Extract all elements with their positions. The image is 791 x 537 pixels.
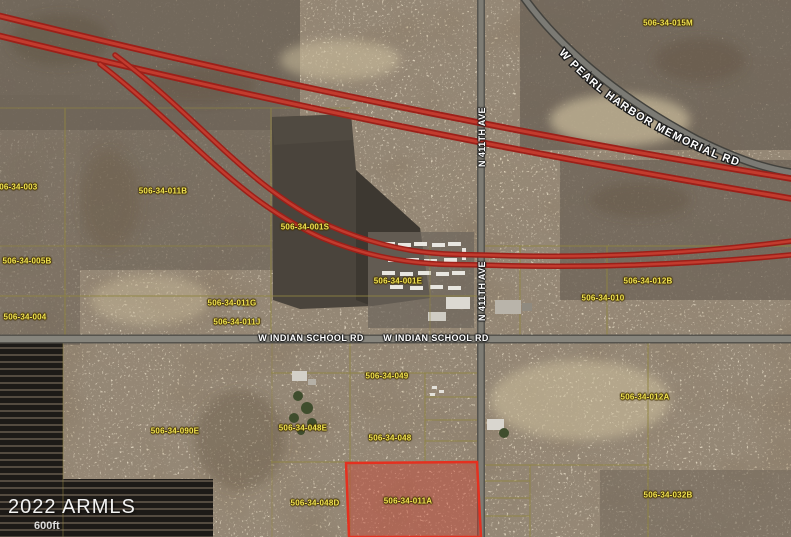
parcel-label: 506-34-001S — [281, 223, 329, 232]
road-label-n411th-ave-lower: N 411TH AVE — [477, 261, 487, 321]
parcel-label: 506-34-090E — [151, 427, 199, 436]
parcel-label: 506-34-032B — [644, 491, 693, 500]
satellite-canvas: W PEARL HARBOR MEMORIAL RD — [0, 0, 791, 537]
parcel-label: 506-34-048D — [291, 499, 340, 508]
parcel-label: 506-34-015M — [643, 19, 693, 28]
parcel-label: 506-34-004 — [4, 313, 47, 322]
map-image: W PEARL HARBOR MEMORIAL RD N 411TH AVE N… — [0, 0, 791, 537]
road-label-n411th-ave-upper: N 411TH AVE — [477, 107, 487, 167]
parcel-label: 506-34-012B — [624, 277, 673, 286]
highlighted-parcel-label: 506-34-011A — [384, 497, 432, 506]
road-label-indian-school-left: W INDIAN SCHOOL RD — [258, 333, 364, 343]
parcel-label: 506-34-011B — [139, 187, 187, 196]
road-label-indian-school-right: W INDIAN SCHOOL RD — [383, 333, 489, 343]
parcel-label: 506-34-012A — [621, 393, 670, 402]
parcel-label: 506-34-011J — [213, 318, 260, 327]
scale-label: 600ft — [34, 520, 60, 532]
armls-watermark: 2022 ARMLS — [8, 496, 136, 519]
parcel-label: 506-34-011G — [208, 299, 257, 308]
parcel-label: 506-34-048E — [279, 424, 327, 433]
parcel-label: 506-34-048 — [369, 434, 412, 443]
parcel-label: 506-34-001E — [374, 277, 422, 286]
parcel-label: 506-34-049 — [366, 372, 409, 381]
parcel-label: 506-34-003 — [0, 183, 37, 192]
parcel-label: 506-34-010 — [582, 294, 625, 303]
parcel-label: 506-34-005B — [3, 257, 52, 266]
